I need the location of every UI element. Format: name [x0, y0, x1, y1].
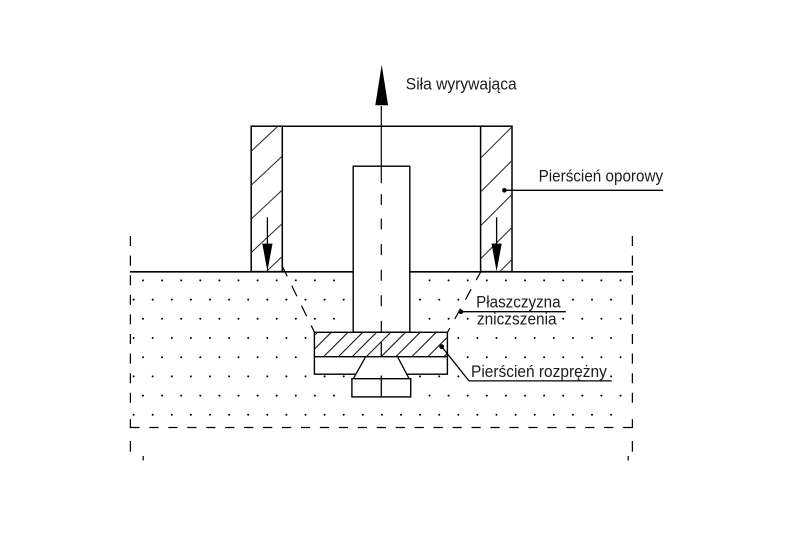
- svg-text:Pierścień rozprężny: Pierścień rozprężny: [471, 362, 607, 381]
- svg-text:Siła wyrywająca: Siła wyrywająca: [406, 74, 517, 93]
- svg-text:zniczszenia: zniczszenia: [477, 310, 557, 329]
- svg-text:Pierścień oporowy: Pierścień oporowy: [539, 167, 664, 186]
